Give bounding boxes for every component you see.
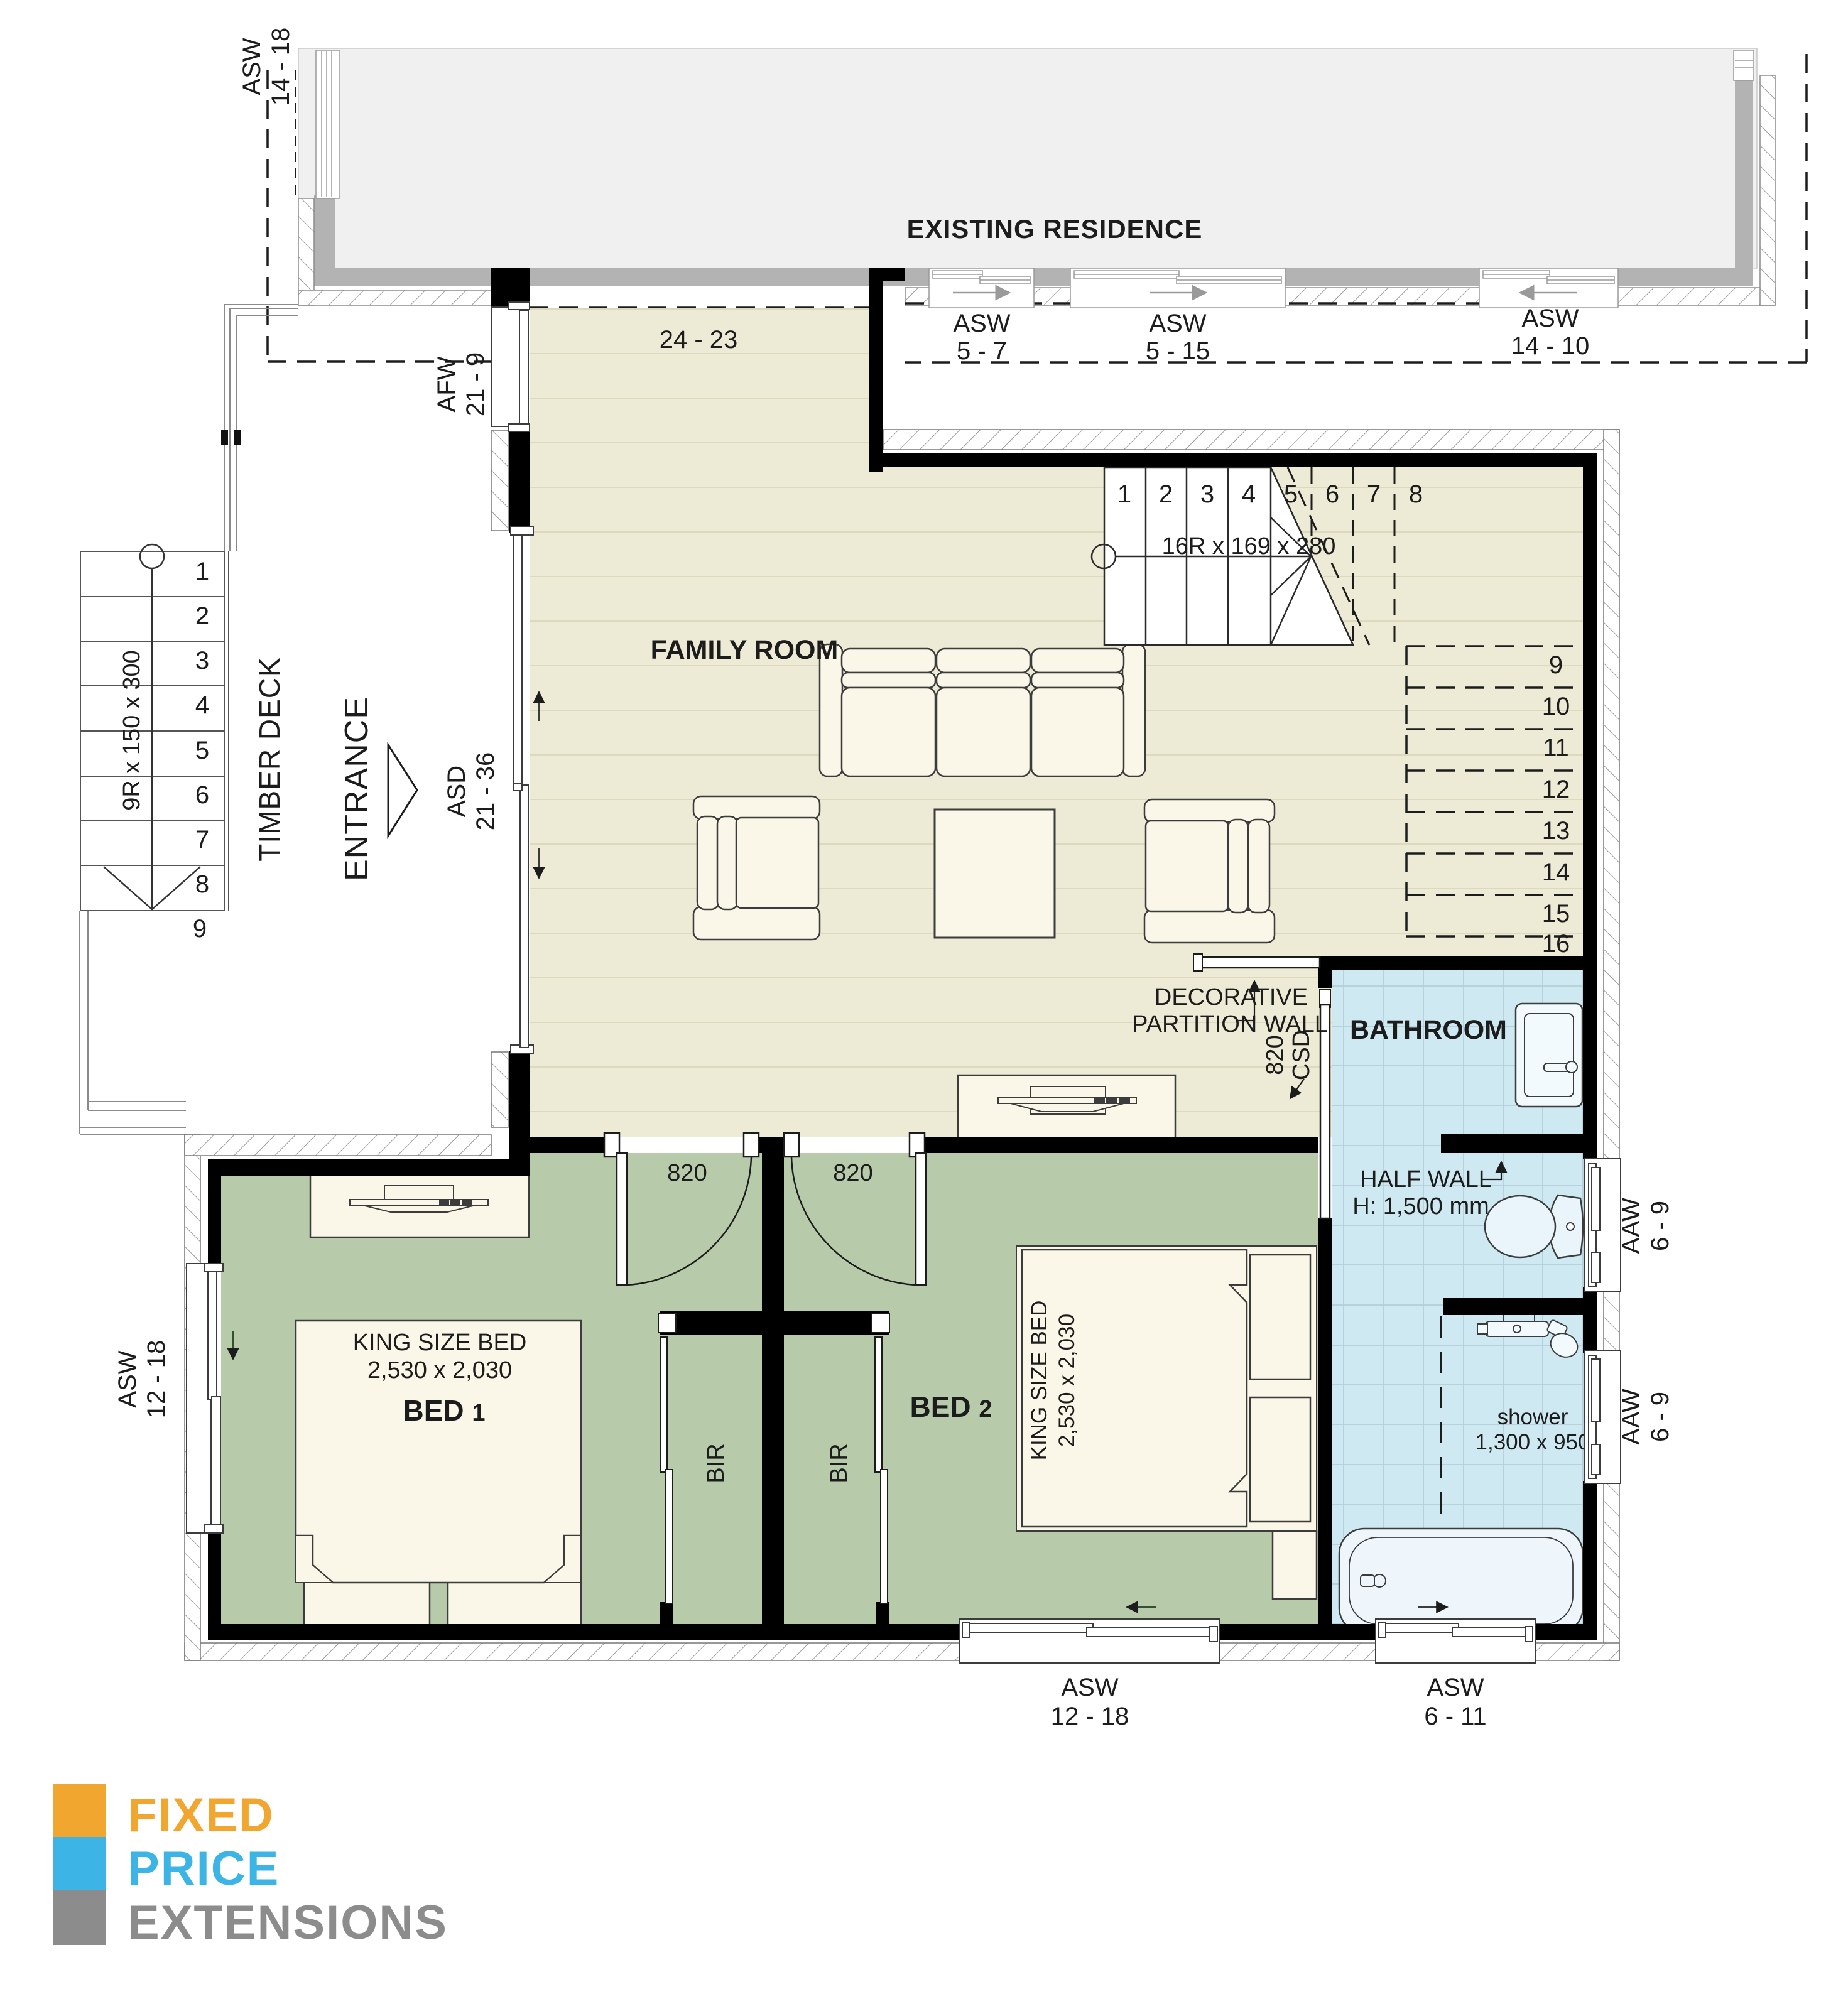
svg-text:2: 2 <box>1159 480 1173 508</box>
svg-text:2,530 x 2,030: 2,530 x 2,030 <box>367 1357 512 1384</box>
svg-text:820: 820 <box>833 1160 872 1186</box>
svg-text:5: 5 <box>1284 480 1298 508</box>
svg-text:16: 16 <box>1542 930 1570 958</box>
svg-text:5: 5 <box>195 737 209 764</box>
svg-text:4: 4 <box>195 691 209 719</box>
svg-text:ASW: ASW <box>1061 1674 1118 1701</box>
svg-text:24 - 23: 24 - 23 <box>660 326 738 354</box>
svg-text:HALF WALL: HALF WALL <box>1360 1166 1492 1193</box>
svg-text:ASW: ASW <box>1521 305 1579 332</box>
svg-text:1: 1 <box>195 558 209 585</box>
svg-text:DECORATIVE: DECORATIVE <box>1155 984 1308 1010</box>
svg-text:5 - 7: 5 - 7 <box>957 337 1007 365</box>
svg-text:ASW: ASW <box>953 310 1010 337</box>
svg-text:12: 12 <box>1542 776 1570 803</box>
svg-text:BIR: BIR <box>826 1443 852 1483</box>
svg-text:EXTENSIONS: EXTENSIONS <box>128 1896 448 1949</box>
svg-text:6 - 11: 6 - 11 <box>1424 1703 1486 1730</box>
svg-text:FAMILY ROOM: FAMILY ROOM <box>651 635 839 665</box>
svg-text:9: 9 <box>193 915 207 943</box>
svg-text:1: 1 <box>1117 480 1131 508</box>
svg-text:ASW: ASW <box>1427 1674 1484 1701</box>
svg-text:FIXED: FIXED <box>128 1789 274 1842</box>
svg-text:5 - 15: 5 - 15 <box>1146 337 1210 365</box>
svg-text:EXISTING RESIDENCE: EXISTING RESIDENCE <box>907 214 1203 244</box>
svg-text:14 - 10: 14 - 10 <box>1511 332 1590 360</box>
svg-text:ASW: ASW <box>1149 310 1206 337</box>
svg-text:BIR: BIR <box>703 1443 729 1483</box>
svg-text:13: 13 <box>1542 817 1570 845</box>
svg-text:12 - 18: 12 - 18 <box>1051 1703 1129 1730</box>
svg-text:6: 6 <box>1325 480 1339 508</box>
svg-text:9R x 150 x 300: 9R x 150 x 300 <box>119 650 145 811</box>
svg-text:2: 2 <box>195 602 209 630</box>
svg-text:1,300 x 950: 1,300 x 950 <box>1476 1430 1590 1455</box>
svg-text:BATHROOM: BATHROOM <box>1350 1015 1507 1045</box>
svg-text:shower: shower <box>1497 1405 1568 1429</box>
svg-text:8: 8 <box>195 870 209 898</box>
svg-text:7: 7 <box>195 826 209 853</box>
svg-text:15: 15 <box>1542 900 1570 928</box>
svg-text:6: 6 <box>195 781 209 809</box>
svg-text:4: 4 <box>1242 480 1256 508</box>
svg-text:820CSD: 820CSD <box>1262 1030 1315 1080</box>
svg-text:H: 1,500 mm: H: 1,500 mm <box>1352 1193 1489 1220</box>
svg-text:14: 14 <box>1542 859 1570 886</box>
svg-text:8: 8 <box>1409 480 1423 508</box>
svg-text:PRICE: PRICE <box>128 1842 280 1895</box>
svg-text:10: 10 <box>1542 693 1570 720</box>
svg-text:820: 820 <box>667 1160 707 1186</box>
svg-text:16R x 169 x 280: 16R x 169 x 280 <box>1162 533 1336 560</box>
svg-text:9: 9 <box>1549 651 1563 679</box>
svg-text:3: 3 <box>195 647 209 674</box>
svg-text:11: 11 <box>1543 734 1569 762</box>
svg-text:3: 3 <box>1200 480 1214 508</box>
svg-text:TIMBER DECK: TIMBER DECK <box>253 657 286 861</box>
svg-text:KING SIZE BED: KING SIZE BED <box>353 1330 527 1356</box>
svg-text:ENTRANCE: ENTRANCE <box>339 696 375 881</box>
svg-text:7: 7 <box>1367 480 1381 508</box>
